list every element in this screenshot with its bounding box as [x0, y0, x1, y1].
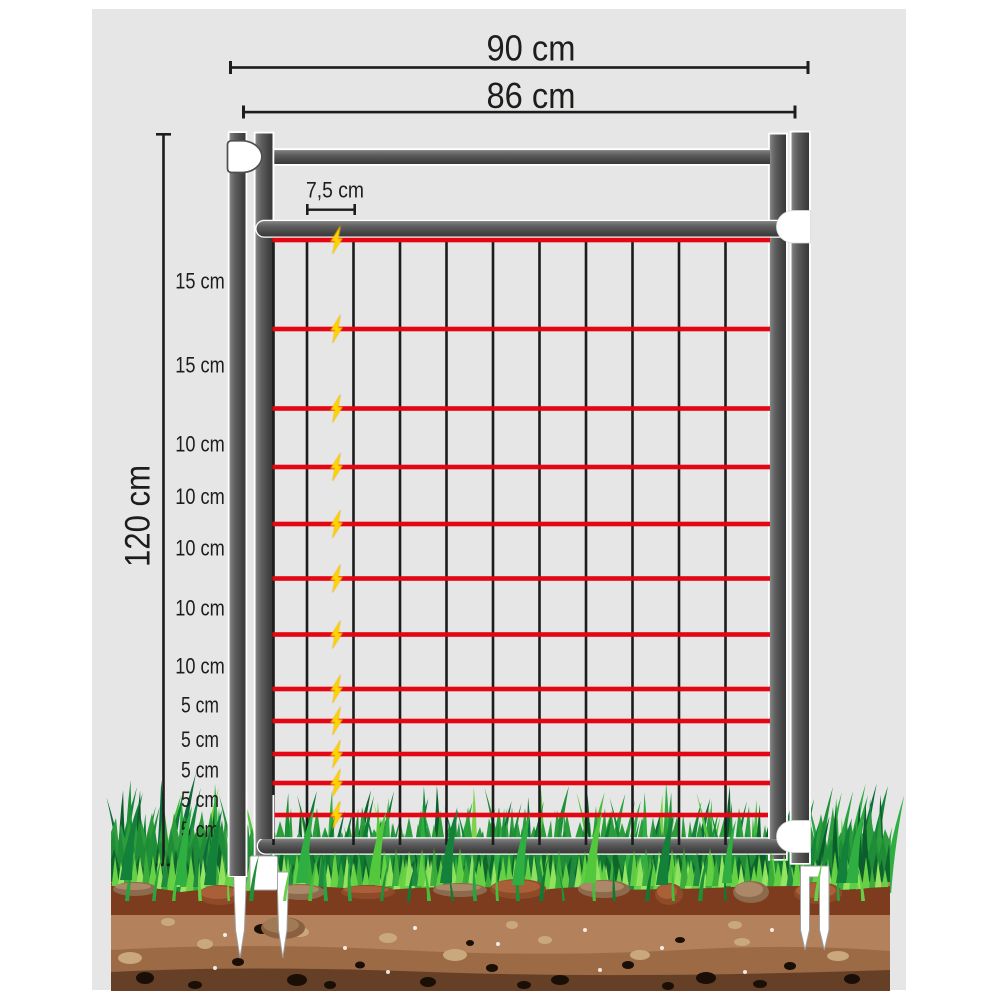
svg-text:15 cm: 15 cm — [175, 353, 225, 378]
svg-text:120 cm: 120 cm — [118, 465, 158, 567]
svg-text:10 cm: 10 cm — [175, 484, 225, 509]
svg-text:10 cm: 10 cm — [175, 654, 225, 679]
svg-text:10 cm: 10 cm — [175, 536, 225, 561]
svg-text:15 cm: 15 cm — [175, 269, 225, 294]
svg-text:90 cm: 90 cm — [487, 28, 576, 69]
svg-text:86 cm: 86 cm — [487, 75, 576, 116]
svg-text:5 cm: 5 cm — [181, 787, 219, 812]
svg-text:7,5 cm: 7,5 cm — [306, 178, 364, 203]
svg-text:5 cm: 5 cm — [181, 758, 219, 783]
svg-text:10 cm: 10 cm — [175, 432, 225, 457]
svg-text:5 cm: 5 cm — [181, 693, 219, 718]
svg-text:10 cm: 10 cm — [175, 596, 225, 621]
svg-text:5 cm: 5 cm — [181, 727, 219, 752]
